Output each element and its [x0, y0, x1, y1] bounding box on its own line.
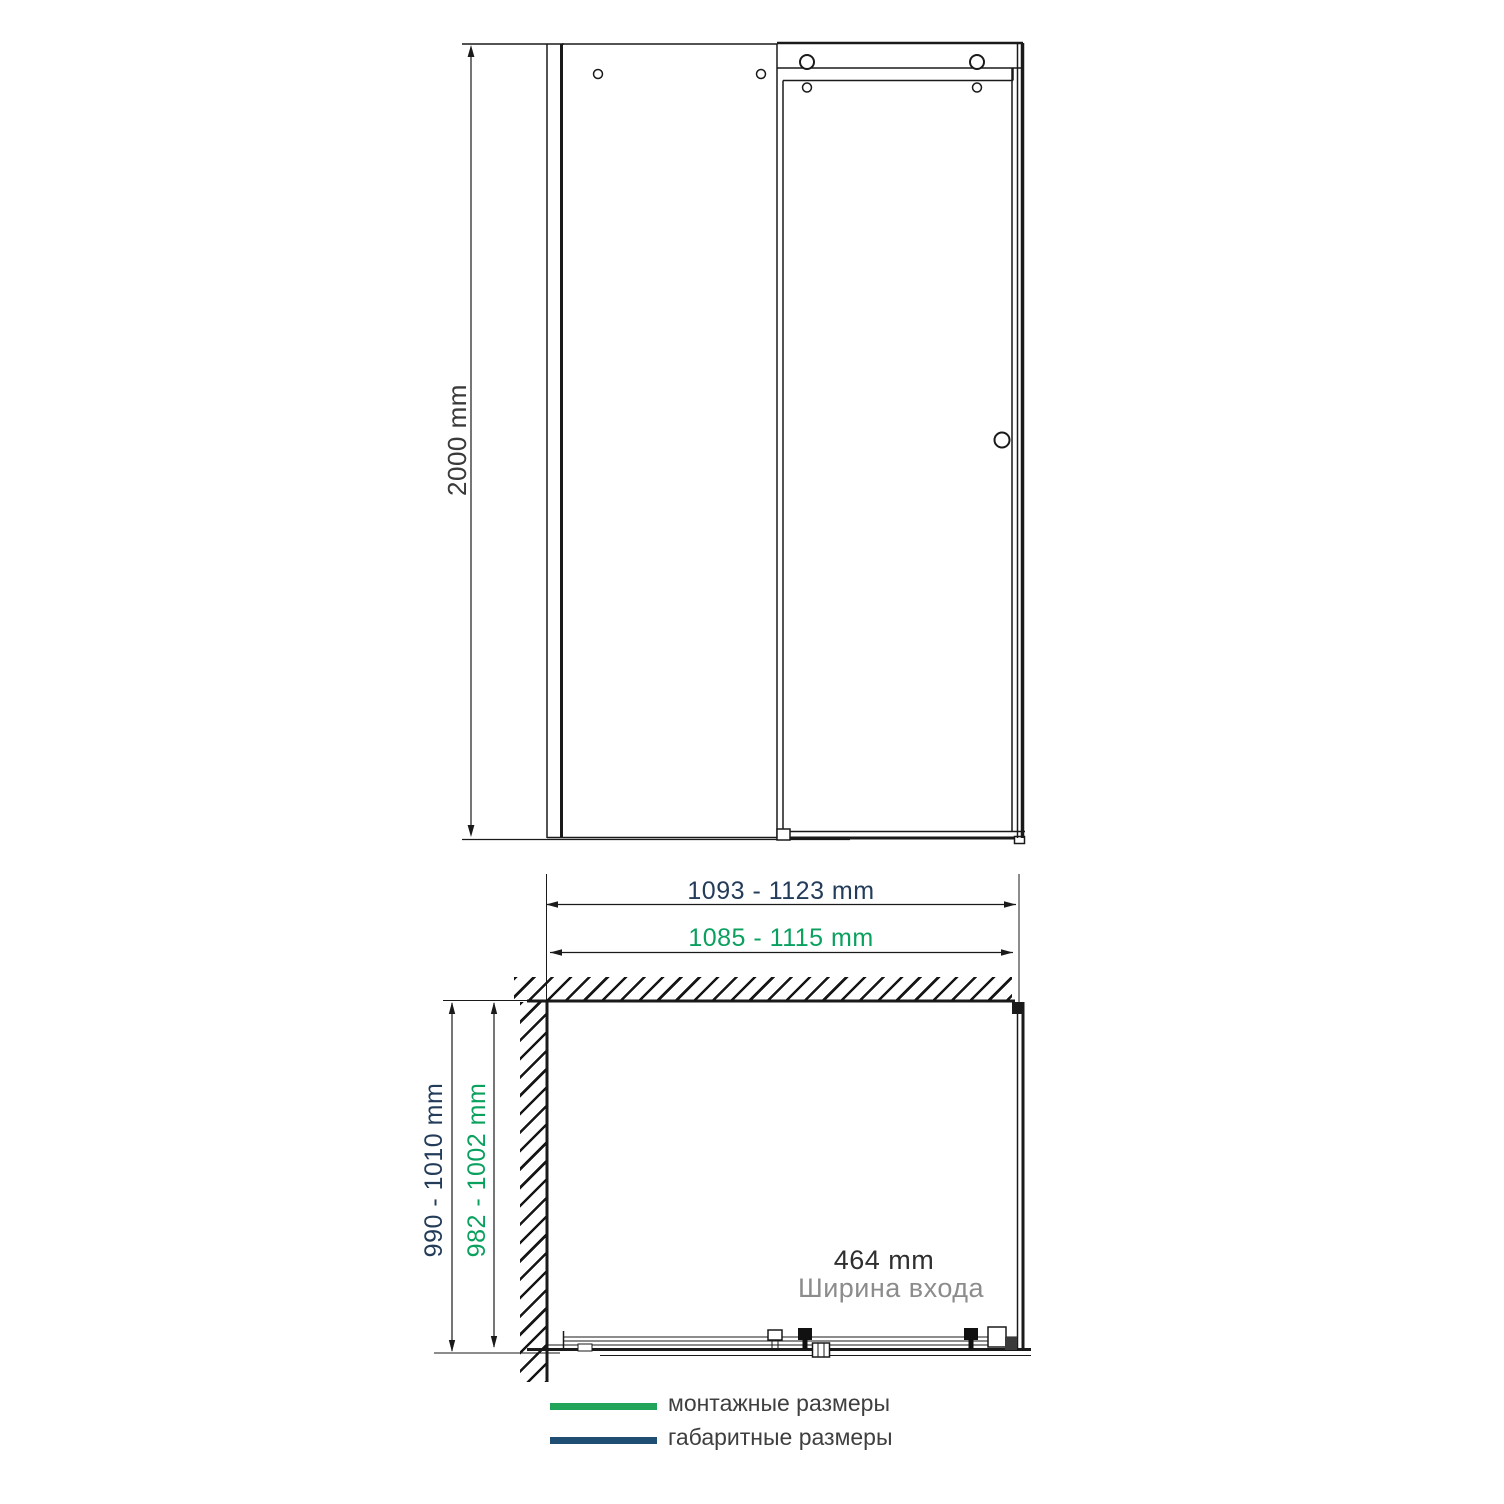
- mounting-depth-label: 982 - 1002 mm: [464, 1060, 492, 1280]
- roller-bolt: [803, 83, 812, 92]
- plan-door-track: [527, 1327, 1031, 1357]
- top-rail: [777, 43, 1023, 92]
- door-bracket: [768, 1330, 782, 1340]
- overall-width-label: 1093 - 1123 mm: [631, 878, 931, 906]
- corner-block: [1005, 1337, 1017, 1350]
- overall-depth-dimension-line: [449, 1002, 455, 1352]
- screw-hole: [757, 70, 766, 79]
- left-wall-profile: [547, 44, 562, 838]
- height-dimension-line: [462, 44, 850, 840]
- overall-depth-label: 990 - 1010 mm: [421, 1060, 449, 1280]
- legend-overall-label: габаритные размеры: [668, 1425, 893, 1450]
- door-handle: [995, 433, 1010, 448]
- guide-box: [813, 1343, 830, 1357]
- sliding-door-panel: [777, 44, 1025, 844]
- entrance-width-caption: Ширина входа: [741, 1274, 1041, 1304]
- bottom-guide-left: [777, 829, 790, 840]
- roller-block: [798, 1328, 812, 1340]
- shower-enclosure-dimension-diagram: 2000 mm 1093 - 1123 mm 1085 - 1115 mm 99…: [0, 0, 1504, 1504]
- height-dimension-label: 2000 mm: [443, 340, 471, 540]
- legend-mounting-swatch: [550, 1403, 657, 1410]
- front-view-drawing: [462, 43, 1025, 844]
- wall-hatch-left: [520, 1002, 547, 1382]
- entrance-width-value: 464 mm: [784, 1246, 984, 1276]
- right-wall-profile: [1018, 43, 1023, 838]
- legend-overall-swatch: [550, 1437, 657, 1444]
- wall-hatch-top: [514, 977, 1012, 1001]
- plan-walls: [527, 1000, 1015, 1382]
- roller-wheel: [800, 55, 814, 69]
- legend-mounting-label: монтажные размеры: [668, 1391, 890, 1416]
- roller-wheel: [970, 55, 984, 69]
- fixed-glass-panel: [547, 44, 777, 838]
- roller-bolt: [973, 83, 982, 92]
- roller-block: [964, 1328, 978, 1340]
- mounting-width-label: 1085 - 1115 mm: [631, 925, 931, 953]
- track-end-part: [578, 1344, 592, 1351]
- screw-hole: [594, 70, 603, 79]
- end-cap-box: [988, 1327, 1006, 1347]
